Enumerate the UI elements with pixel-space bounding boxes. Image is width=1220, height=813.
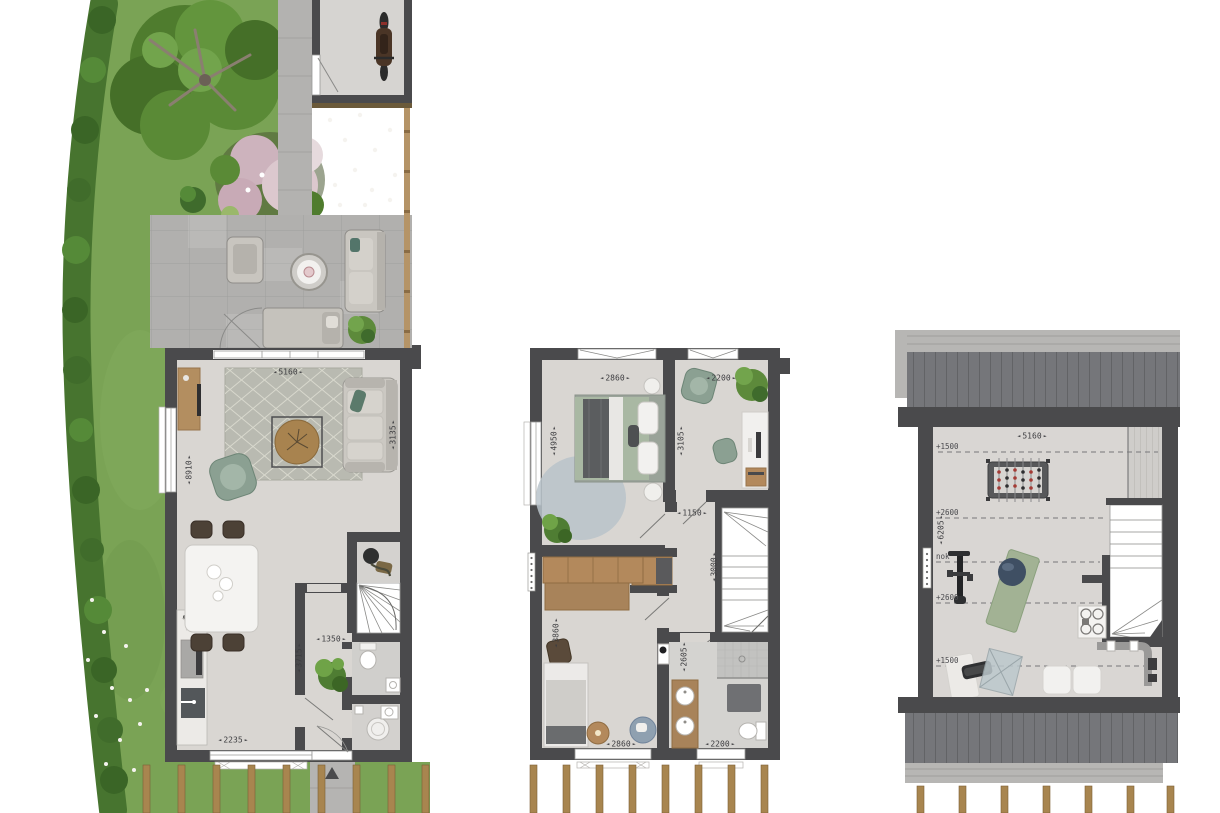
terrace-daybed — [263, 308, 343, 348]
terrace-sofa — [345, 230, 385, 312]
dim-first-bathroom-depth: 2605 — [680, 642, 689, 671]
toilet-room — [352, 642, 400, 695]
deck-posts — [530, 765, 768, 813]
mat — [1073, 666, 1101, 694]
garage — [312, 0, 412, 103]
terrace-plant — [348, 316, 376, 344]
bedroom1-window — [578, 349, 656, 359]
utility-room — [352, 704, 400, 750]
dim-first-study-width: 2200 — [706, 374, 735, 383]
bath-mat — [727, 684, 761, 712]
kitchen-window — [210, 751, 312, 769]
roof-bottom — [898, 697, 1180, 783]
height-line-label: +2600 — [936, 508, 959, 517]
bedroom2-window — [575, 749, 651, 768]
ridge-line-label: nok — [936, 552, 950, 561]
stairs — [722, 508, 768, 632]
monitor — [756, 432, 761, 458]
dim-ground-kitchen-width: 2235 — [218, 736, 247, 745]
dim-first-landing-width: 1150 — [677, 509, 706, 518]
dim-first-bedroom1-depth: 4950 — [550, 426, 559, 455]
terrace-armchair — [227, 237, 263, 283]
toilet — [739, 722, 766, 740]
stairs — [357, 583, 400, 633]
bathroom-window — [697, 749, 745, 768]
desk — [742, 412, 768, 488]
dim-first-study-depth: 3105 — [677, 426, 686, 455]
sloped-ceiling — [1128, 427, 1162, 505]
bed-double — [575, 395, 665, 482]
study-window — [688, 349, 738, 359]
height-line-label: +1500 — [936, 442, 959, 451]
dim-first-bedroom1-width: 2860 — [600, 374, 629, 383]
bathroom — [658, 642, 768, 748]
dim-ground-depth: 8910 — [185, 455, 194, 484]
bedside-stool — [644, 483, 662, 501]
dim-first-stairs-depth: 3000 — [710, 552, 719, 581]
exercise-ball — [998, 558, 1026, 586]
dim-first-bedroom2-width: 2860 — [606, 740, 635, 749]
vacuum-closet — [357, 542, 400, 583]
vanity — [672, 680, 698, 748]
dim-attic-width: 5160 — [1017, 432, 1046, 441]
bedroom2-wardrobe — [543, 557, 643, 610]
shower — [717, 642, 768, 678]
radiator-symbol — [923, 548, 931, 588]
dim-first-bathroom-width: 2200 — [705, 740, 734, 749]
dim-attic-depth: 6205 — [937, 515, 946, 544]
tv-cabinet — [178, 368, 201, 430]
radiator-symbol — [528, 553, 535, 591]
dim-first-bedroom2-depth: 3860 — [552, 618, 561, 647]
foosball-table — [986, 458, 1050, 502]
terrace-coffee-table — [291, 254, 327, 290]
lamp-icon — [595, 730, 601, 736]
sliding-door — [213, 350, 365, 359]
dim-ground-hall-width: 1350 — [316, 635, 345, 644]
deck-posts — [917, 786, 1174, 813]
wall-hung-fixture — [658, 644, 669, 664]
bedside-stool — [644, 378, 660, 394]
first-floor-plan — [515, 340, 800, 813]
floorplan-sheet: 5160 8910 3135 1350 3715 2235 2860 2200 … — [0, 0, 1220, 813]
living-window-left — [159, 407, 176, 493]
attic-plan — [890, 325, 1185, 813]
tv — [197, 384, 201, 416]
dim-ground-living-right: 3135 — [389, 420, 398, 449]
ground-floor-plan — [60, 0, 430, 813]
bedroom2-desk — [545, 583, 629, 610]
dim-ground-living-width: 5160 — [273, 368, 302, 377]
entrance-path — [310, 762, 355, 813]
bed-single — [544, 663, 588, 747]
mat — [1043, 666, 1071, 694]
mechanical-unit — [1078, 606, 1106, 638]
height-line-label: +2600 — [936, 593, 959, 602]
height-line-label: +1500 — [936, 656, 959, 665]
dim-ground-hall-depth: 3715 — [295, 643, 304, 672]
